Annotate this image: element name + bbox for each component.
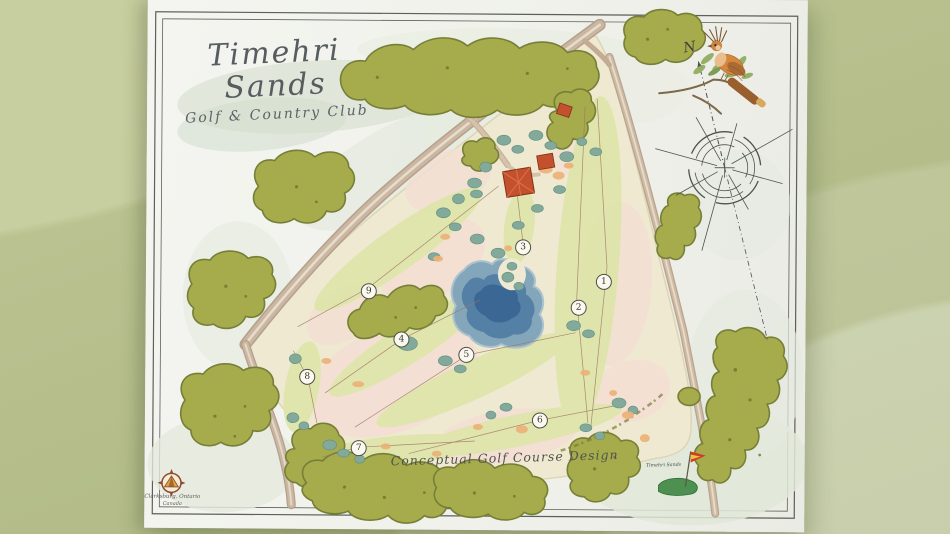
water-hazard-pond — [451, 258, 543, 348]
green-icon — [658, 478, 697, 495]
hole-marker-4: 4 — [393, 331, 409, 347]
hole-marker-6: 6 — [532, 412, 548, 428]
eye — [714, 44, 716, 46]
compass-north-label: N — [682, 39, 697, 57]
hole-marker-2: 2 — [571, 300, 587, 316]
hole-marker-3: 3 — [515, 239, 531, 255]
map-paper: Timehri Sands Golf & Country Club N 1 2 … — [144, 0, 808, 532]
designer-stamp: Clarksburg, Ontario Canada — [144, 494, 200, 508]
hole-marker-9: 9 — [361, 283, 377, 299]
title-block: Timehri Sands Golf & Country Club — [153, 31, 397, 128]
designer-stamp-line1: Clarksburg, Ontario — [144, 494, 200, 501]
beak — [707, 45, 712, 48]
designer-stamp-line2: Canada — [144, 501, 200, 508]
map-title: Timehri Sands — [153, 31, 396, 108]
hole-marker-1: 1 — [596, 274, 612, 290]
tail — [726, 76, 761, 107]
hole-marker-7: 7 — [351, 440, 367, 456]
outbuilding — [537, 153, 555, 169]
photo-background: Timehri Sands Golf & Country Club N 1 2 … — [0, 0, 950, 534]
hole-marker-5: 5 — [458, 347, 474, 363]
crest — [705, 27, 727, 42]
hole-marker-8: 8 — [299, 369, 315, 385]
